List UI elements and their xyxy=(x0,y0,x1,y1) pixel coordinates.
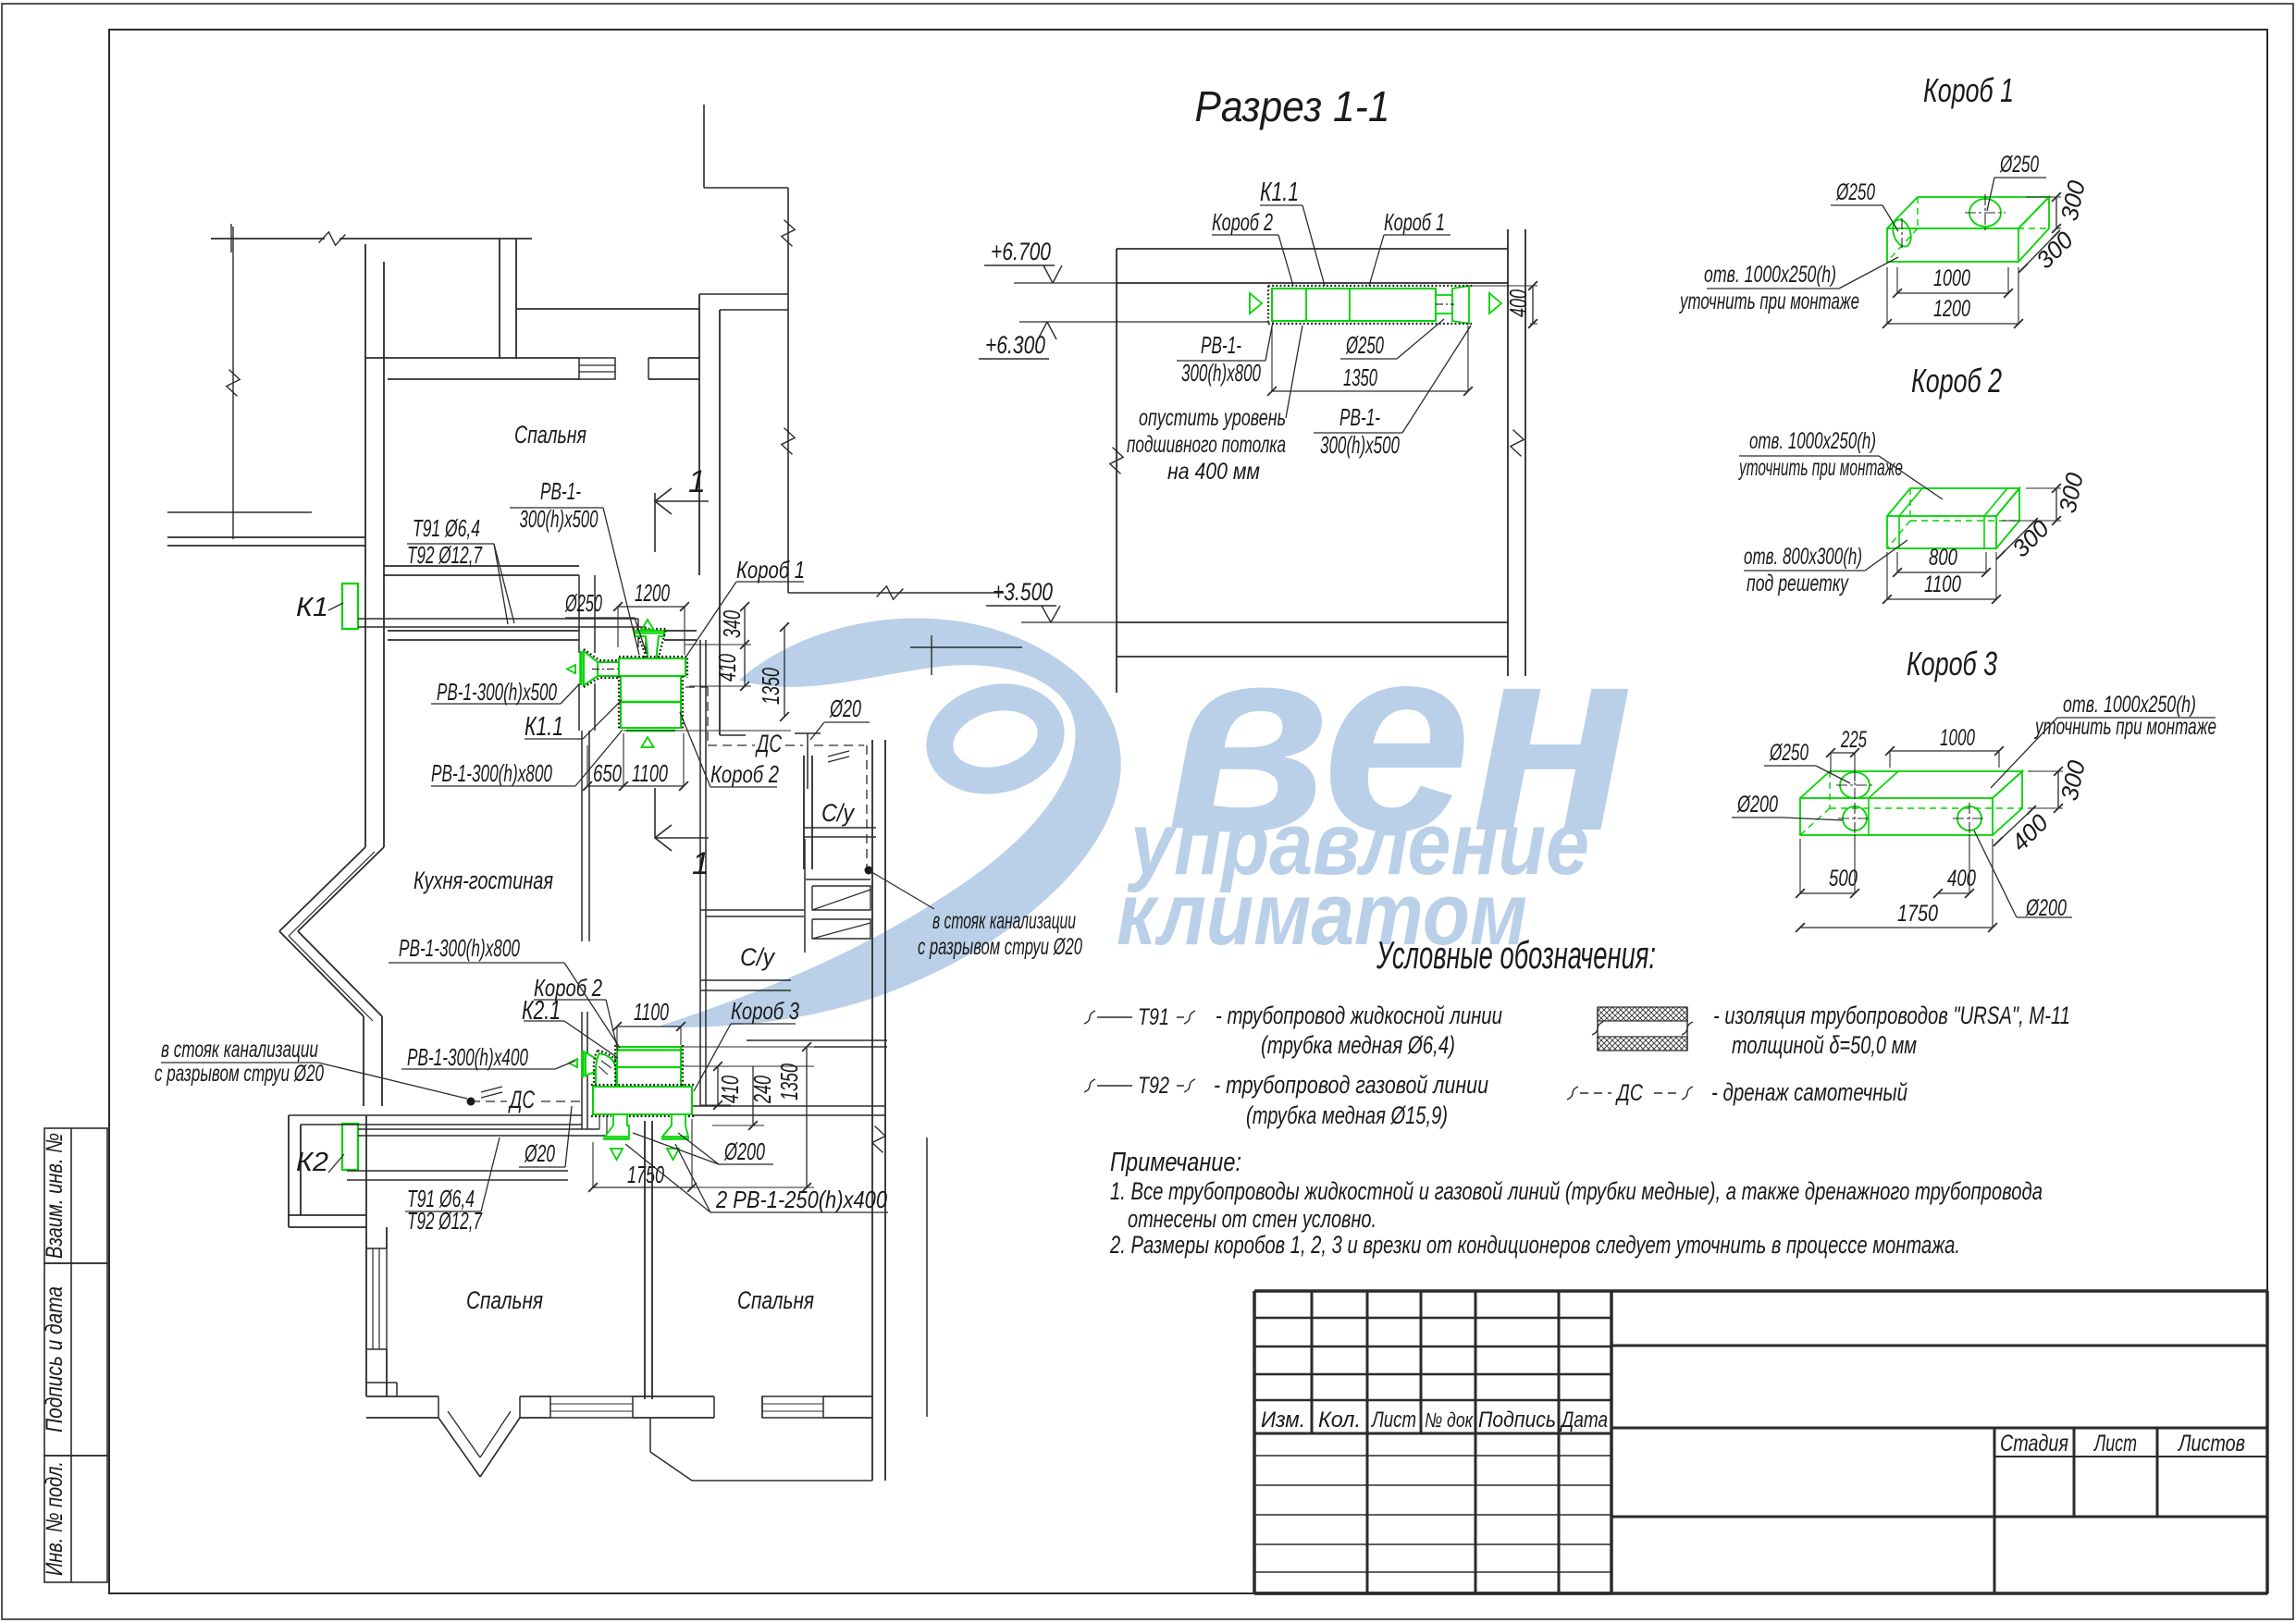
svg-text:Стадия: Стадия xyxy=(2000,1431,2068,1457)
svg-text:Ø250: Ø250 xyxy=(1999,152,2039,178)
svg-text:РВ-1-: РВ-1- xyxy=(1201,331,1241,359)
svg-text:650: 650 xyxy=(593,759,622,787)
svg-text:Изм.: Изм. xyxy=(1261,1408,1305,1432)
svg-text:1750: 1750 xyxy=(627,1161,664,1188)
svg-text:уточнить при монтаже: уточнить при монтаже xyxy=(1679,289,1859,314)
svg-text:Короб 2: Короб 2 xyxy=(1911,362,2002,400)
svg-text:К1: К1 xyxy=(296,593,328,622)
svg-text:толщиной δ=50,0 мм: толщиной δ=50,0 мм xyxy=(1732,1031,1917,1059)
svg-text:РВ-1-: РВ-1- xyxy=(540,477,581,505)
svg-text:1200: 1200 xyxy=(635,579,670,607)
svg-text:Короб 3: Короб 3 xyxy=(1907,645,1997,682)
svg-text:Подпись: Подпись xyxy=(1478,1408,1556,1432)
svg-text:410: 410 xyxy=(716,1076,744,1103)
svg-text:500: 500 xyxy=(1829,866,1858,891)
svg-text:1: 1 xyxy=(692,846,710,881)
svg-text:1350: 1350 xyxy=(1343,363,1377,391)
svg-text:800: 800 xyxy=(1929,545,1957,571)
svg-text:РВ-1-300(h)x800: РВ-1-300(h)x800 xyxy=(399,934,520,962)
svg-text:1350: 1350 xyxy=(757,668,784,705)
svg-text:400: 400 xyxy=(1504,289,1532,317)
svg-text:300(h)x500: 300(h)x500 xyxy=(1320,431,1400,459)
svg-text:подшивного потолка: подшивного потолка xyxy=(1127,432,1286,458)
svg-text:340: 340 xyxy=(718,610,746,638)
svg-text:РВ-1-300(h)x800: РВ-1-300(h)x800 xyxy=(431,759,552,787)
svg-text:1. Все трубопроводы жидкостной: 1. Все трубопроводы жидкостной и газовой… xyxy=(1110,1177,2043,1205)
svg-text:1100: 1100 xyxy=(1924,572,1961,597)
svg-text:ДС: ДС xyxy=(755,730,782,757)
svg-text:опустить уровень: опустить уровень xyxy=(1139,405,1286,431)
svg-text:Подпись и дата: Подпись и дата xyxy=(42,1286,68,1432)
svg-text:отв. 1000x250(h): отв. 1000x250(h) xyxy=(1704,262,1836,288)
svg-text:Ø20: Ø20 xyxy=(829,695,861,722)
svg-text:с разрывом струи Ø20: с разрывом струи Ø20 xyxy=(154,1061,324,1087)
svg-text:1100: 1100 xyxy=(632,759,668,787)
svg-text:Ø250: Ø250 xyxy=(1345,331,1384,359)
svg-text:(трубка медная Ø6,4): (трубка медная Ø6,4) xyxy=(1261,1031,1455,1059)
svg-text:Лист: Лист xyxy=(1370,1408,1416,1432)
svg-text:1000: 1000 xyxy=(1940,725,1975,751)
svg-text:Листов: Листов xyxy=(2177,1431,2245,1457)
svg-text:1100: 1100 xyxy=(634,998,669,1026)
svg-text:2. Размеры коробов 1, 2, 3 и в: 2. Размеры коробов 1, 2, 3 и врезки от к… xyxy=(1109,1231,1960,1259)
svg-text:Кухня-гостиная: Кухня-гостиная xyxy=(414,867,553,894)
svg-text:300(h)x800: 300(h)x800 xyxy=(1181,359,1261,387)
svg-text:240: 240 xyxy=(748,1076,776,1104)
svg-text:РВ-1-: РВ-1- xyxy=(1339,403,1380,431)
svg-text:Т91 Ø6,4: Т91 Ø6,4 xyxy=(413,514,480,542)
svg-text:К2: К2 xyxy=(296,1148,328,1177)
svg-text:уточнить при монтаже: уточнить при монтаже xyxy=(1738,455,1903,481)
svg-text:- трубопровод газовой линии: - трубопровод газовой линии xyxy=(1214,1071,1488,1099)
svg-text:в стояк канализации: в стояк канализации xyxy=(932,908,1076,934)
svg-text:Короб 1: Короб 1 xyxy=(1923,71,2014,109)
svg-text:+6.700: +6.700 xyxy=(991,238,1051,265)
svg-text:С/у: С/у xyxy=(740,943,775,971)
svg-text:ДС: ДС xyxy=(1615,1080,1644,1106)
svg-text:1750: 1750 xyxy=(1897,901,1938,927)
svg-text:Ø200: Ø200 xyxy=(1736,792,1778,818)
svg-text:Разрез 1-1: Разрез 1-1 xyxy=(1195,82,1390,130)
svg-text:Спальня: Спальня xyxy=(466,1286,543,1314)
svg-text:РВ-1-300(h)x400: РВ-1-300(h)x400 xyxy=(407,1043,528,1071)
svg-text:Инв. № подл.: Инв. № подл. xyxy=(42,1461,68,1576)
svg-text:Лист: Лист xyxy=(2093,1431,2137,1457)
svg-text:1350: 1350 xyxy=(775,1064,803,1100)
svg-text:300(h)x500: 300(h)x500 xyxy=(520,505,599,533)
svg-text:410: 410 xyxy=(713,654,741,682)
svg-text:РВ-1-300(h)x500: РВ-1-300(h)x500 xyxy=(437,678,557,706)
svg-text:на 400 мм: на 400 мм xyxy=(1167,459,1260,485)
svg-text:Кол.: Кол. xyxy=(1318,1408,1361,1432)
svg-text:К1.1: К1.1 xyxy=(1260,178,1299,207)
svg-text:Ø250: Ø250 xyxy=(1769,740,1808,766)
svg-text:225: 225 xyxy=(1840,727,1867,753)
svg-text:- изоляция трубопроводов "URSA: - изоляция трубопроводов "URSA", М-11 xyxy=(1713,1002,2070,1029)
svg-text:- трубопровод жидкосной линии: - трубопровод жидкосной линии xyxy=(1216,1002,1502,1029)
svg-text:Т92: Т92 xyxy=(1138,1073,1169,1099)
svg-text:Условные обозначения:: Условные обозначения: xyxy=(1376,933,1656,977)
svg-text:Короб 2: Короб 2 xyxy=(1212,208,1273,236)
svg-text:- дренаж самотечный: - дренаж самотечный xyxy=(1711,1078,1907,1106)
svg-text:1: 1 xyxy=(688,464,706,499)
svg-text:К1.1: К1.1 xyxy=(525,712,563,742)
svg-text:под решетку: под решетку xyxy=(1747,571,1849,596)
svg-text:отв. 1000x250(h): отв. 1000x250(h) xyxy=(1749,428,1876,454)
svg-text:Ø200: Ø200 xyxy=(723,1137,765,1165)
svg-text:+3.500: +3.500 xyxy=(993,578,1053,606)
svg-text:Короб 3: Короб 3 xyxy=(731,997,799,1025)
svg-text:Ø250: Ø250 xyxy=(564,589,602,617)
svg-text:ДС: ДС xyxy=(508,1086,535,1113)
svg-text:Взаим. инв. №: Взаим. инв. № xyxy=(42,1133,68,1259)
svg-text:Дата: Дата xyxy=(1560,1408,1608,1432)
svg-text:Короб 1: Короб 1 xyxy=(736,556,805,584)
svg-text:Примечание:: Примечание: xyxy=(1110,1148,1241,1177)
svg-text:Ø250: Ø250 xyxy=(1835,179,1875,205)
svg-text:Т91: Т91 xyxy=(1138,1004,1169,1030)
svg-text:Ø20: Ø20 xyxy=(524,1139,555,1167)
svg-text:Т92 Ø12,7: Т92 Ø12,7 xyxy=(407,541,483,569)
svg-text:с разрывом струи Ø20: с разрывом струи Ø20 xyxy=(918,934,1082,960)
svg-text:1000: 1000 xyxy=(1933,265,1970,291)
svg-text:2 РВ-1-250(h)x400: 2 РВ-1-250(h)x400 xyxy=(715,1186,887,1213)
svg-text:Короб 1: Короб 1 xyxy=(1384,208,1445,236)
svg-text:Короб 2: Короб 2 xyxy=(710,760,779,788)
svg-text:Спальня: Спальня xyxy=(514,421,586,449)
svg-text:С/у: С/у xyxy=(821,799,855,827)
svg-text:№ док: № док xyxy=(1425,1408,1474,1432)
svg-text:отнесены от стен условно.: отнесены от стен условно. xyxy=(1128,1205,1376,1233)
svg-text:+6.300: +6.300 xyxy=(985,331,1045,359)
svg-text:400: 400 xyxy=(1947,866,1976,891)
svg-text:Спальня: Спальня xyxy=(737,1286,814,1314)
svg-text:(трубка медная Ø15,9): (трубка медная Ø15,9) xyxy=(1246,1101,1448,1129)
svg-text:в стояк канализации: в стояк канализации xyxy=(161,1037,318,1063)
svg-text:отв. 800x300(h): отв. 800x300(h) xyxy=(1744,544,1862,570)
svg-text:1200: 1200 xyxy=(1933,296,1970,322)
